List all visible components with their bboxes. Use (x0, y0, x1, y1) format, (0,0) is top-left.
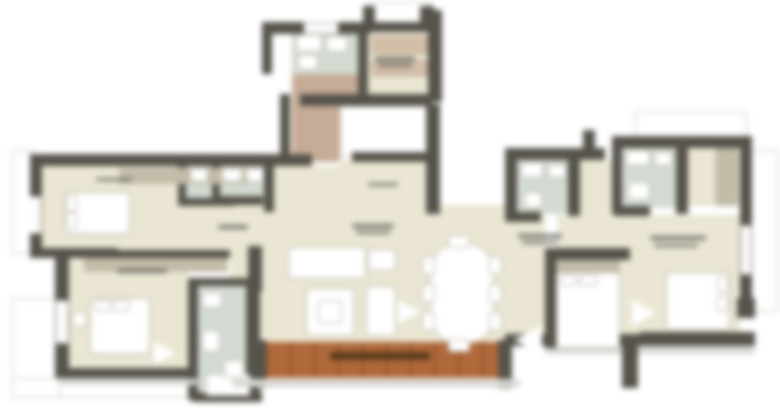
wall (545, 248, 630, 260)
side-table (368, 249, 396, 271)
room-label-smudge (378, 64, 412, 67)
wall (352, 152, 430, 162)
wall (505, 212, 541, 222)
bath-fixture (326, 36, 348, 52)
window (741, 225, 751, 275)
bath-fixture (298, 54, 318, 70)
window (304, 23, 338, 34)
room-label-smudge (518, 234, 562, 238)
pillow (717, 276, 728, 293)
tv-console (366, 286, 396, 336)
passage-floor (580, 160, 612, 220)
dining-chair (489, 256, 502, 275)
dining-chair (422, 284, 435, 303)
wall (188, 278, 250, 286)
wall (215, 196, 263, 205)
wall (428, 10, 442, 102)
room-label-smudge (96, 178, 132, 181)
dining-chair (489, 312, 502, 331)
room-label-smudge (654, 244, 698, 247)
wall (737, 298, 755, 318)
coffee-table-top (318, 300, 342, 324)
bath-fixture (222, 168, 242, 182)
floor-plan-screenshot (0, 0, 780, 416)
room-label-smudge (650, 236, 706, 240)
pillow (94, 300, 111, 311)
wall (676, 140, 688, 214)
room-label-smudge (117, 269, 167, 273)
wall (280, 94, 290, 162)
room-label-smudge (352, 224, 394, 228)
room-label-smudge (356, 231, 390, 234)
bath-fixture (202, 292, 222, 308)
deck-label-smudge (330, 352, 430, 360)
dining-chair (448, 339, 470, 352)
pillow (66, 212, 77, 229)
wall (300, 94, 432, 106)
wall (358, 22, 368, 94)
wall (568, 152, 580, 216)
window (56, 300, 68, 344)
sofa (288, 247, 366, 279)
wall (55, 368, 195, 378)
room-label-smudge (368, 183, 398, 186)
wardrobe (556, 260, 620, 272)
dining-chair (422, 312, 435, 331)
right-ledge-outline (748, 150, 778, 312)
bath-fixture (224, 360, 244, 378)
pillow (66, 195, 77, 212)
bath-fixture (626, 150, 650, 166)
wall (614, 206, 650, 216)
wall (640, 332, 755, 346)
floor-plan (0, 0, 780, 416)
window (30, 196, 41, 234)
wall (264, 160, 274, 212)
bath-fixture (628, 182, 650, 200)
wall-shadow (545, 347, 755, 354)
deck-shadow (232, 379, 520, 387)
utility-counter (372, 60, 428, 76)
dining-chair (489, 284, 502, 303)
side-table (72, 312, 87, 327)
stair-void (340, 106, 429, 156)
bath-fixture (524, 192, 542, 208)
wall (60, 250, 230, 258)
bath-fixture (202, 330, 220, 352)
wall (583, 130, 595, 160)
bath-fixture (296, 34, 322, 52)
bath-fixture (246, 168, 264, 182)
dining-table (430, 243, 494, 344)
wardrobe (716, 148, 738, 206)
dining-chair (448, 235, 470, 248)
bath-fixture (521, 162, 543, 178)
wall-shadow (58, 379, 198, 385)
dining-chair (422, 256, 435, 275)
bath-fixture (190, 168, 208, 182)
room-label-smudge (218, 225, 248, 229)
bath-fixture (548, 164, 566, 178)
pillow (580, 275, 598, 286)
wall (622, 344, 638, 388)
utility-counter (372, 36, 428, 54)
wall (262, 30, 272, 74)
room-label-smudge (522, 241, 558, 244)
pillow (113, 300, 130, 311)
pillow (560, 275, 578, 286)
pillow (717, 295, 728, 312)
wall (612, 136, 622, 214)
wall (426, 104, 440, 214)
room-label-smudge (375, 57, 415, 61)
bath-fixture (654, 152, 672, 166)
wall (505, 148, 517, 218)
